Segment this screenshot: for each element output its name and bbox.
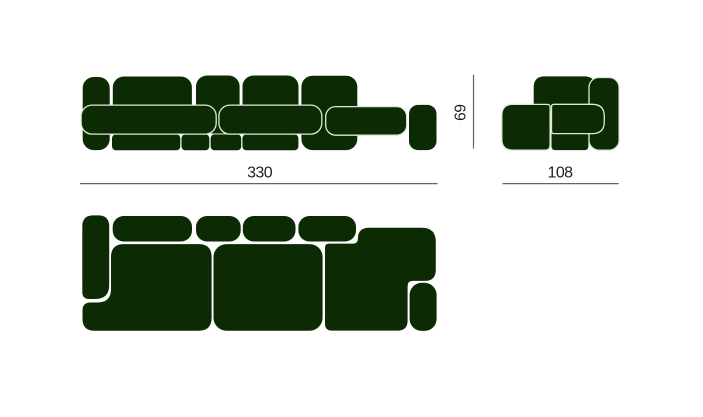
svg-text:330: 330 <box>247 164 273 181</box>
svg-text:108: 108 <box>547 165 573 182</box>
svg-text:69: 69 <box>451 104 468 120</box>
